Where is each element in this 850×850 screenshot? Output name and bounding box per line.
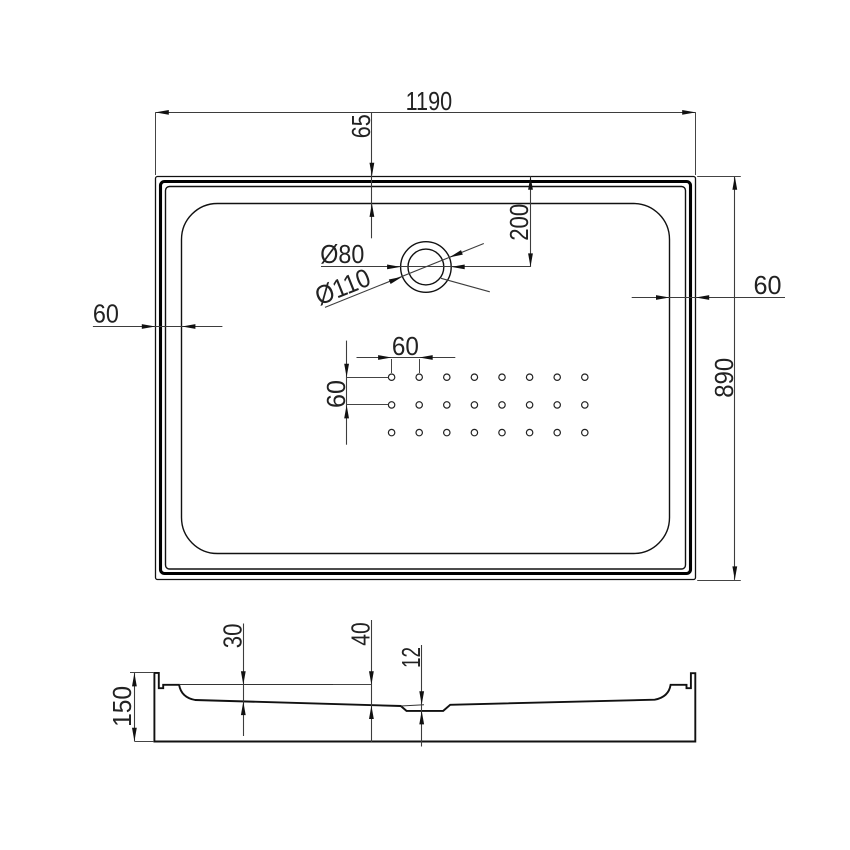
svg-text:150: 150 [107,686,137,727]
svg-text:1190: 1190 [406,86,453,116]
svg-text:60: 60 [321,380,351,408]
svg-text:65: 65 [346,114,376,138]
svg-text:30: 30 [218,624,248,649]
svg-text:200: 200 [504,204,534,241]
svg-text:40: 40 [346,622,376,646]
svg-text:60: 60 [754,270,782,300]
svg-text:12: 12 [396,647,426,668]
svg-text:60: 60 [392,331,419,361]
svg-text:60: 60 [93,299,119,329]
svg-text:890: 890 [709,358,739,398]
